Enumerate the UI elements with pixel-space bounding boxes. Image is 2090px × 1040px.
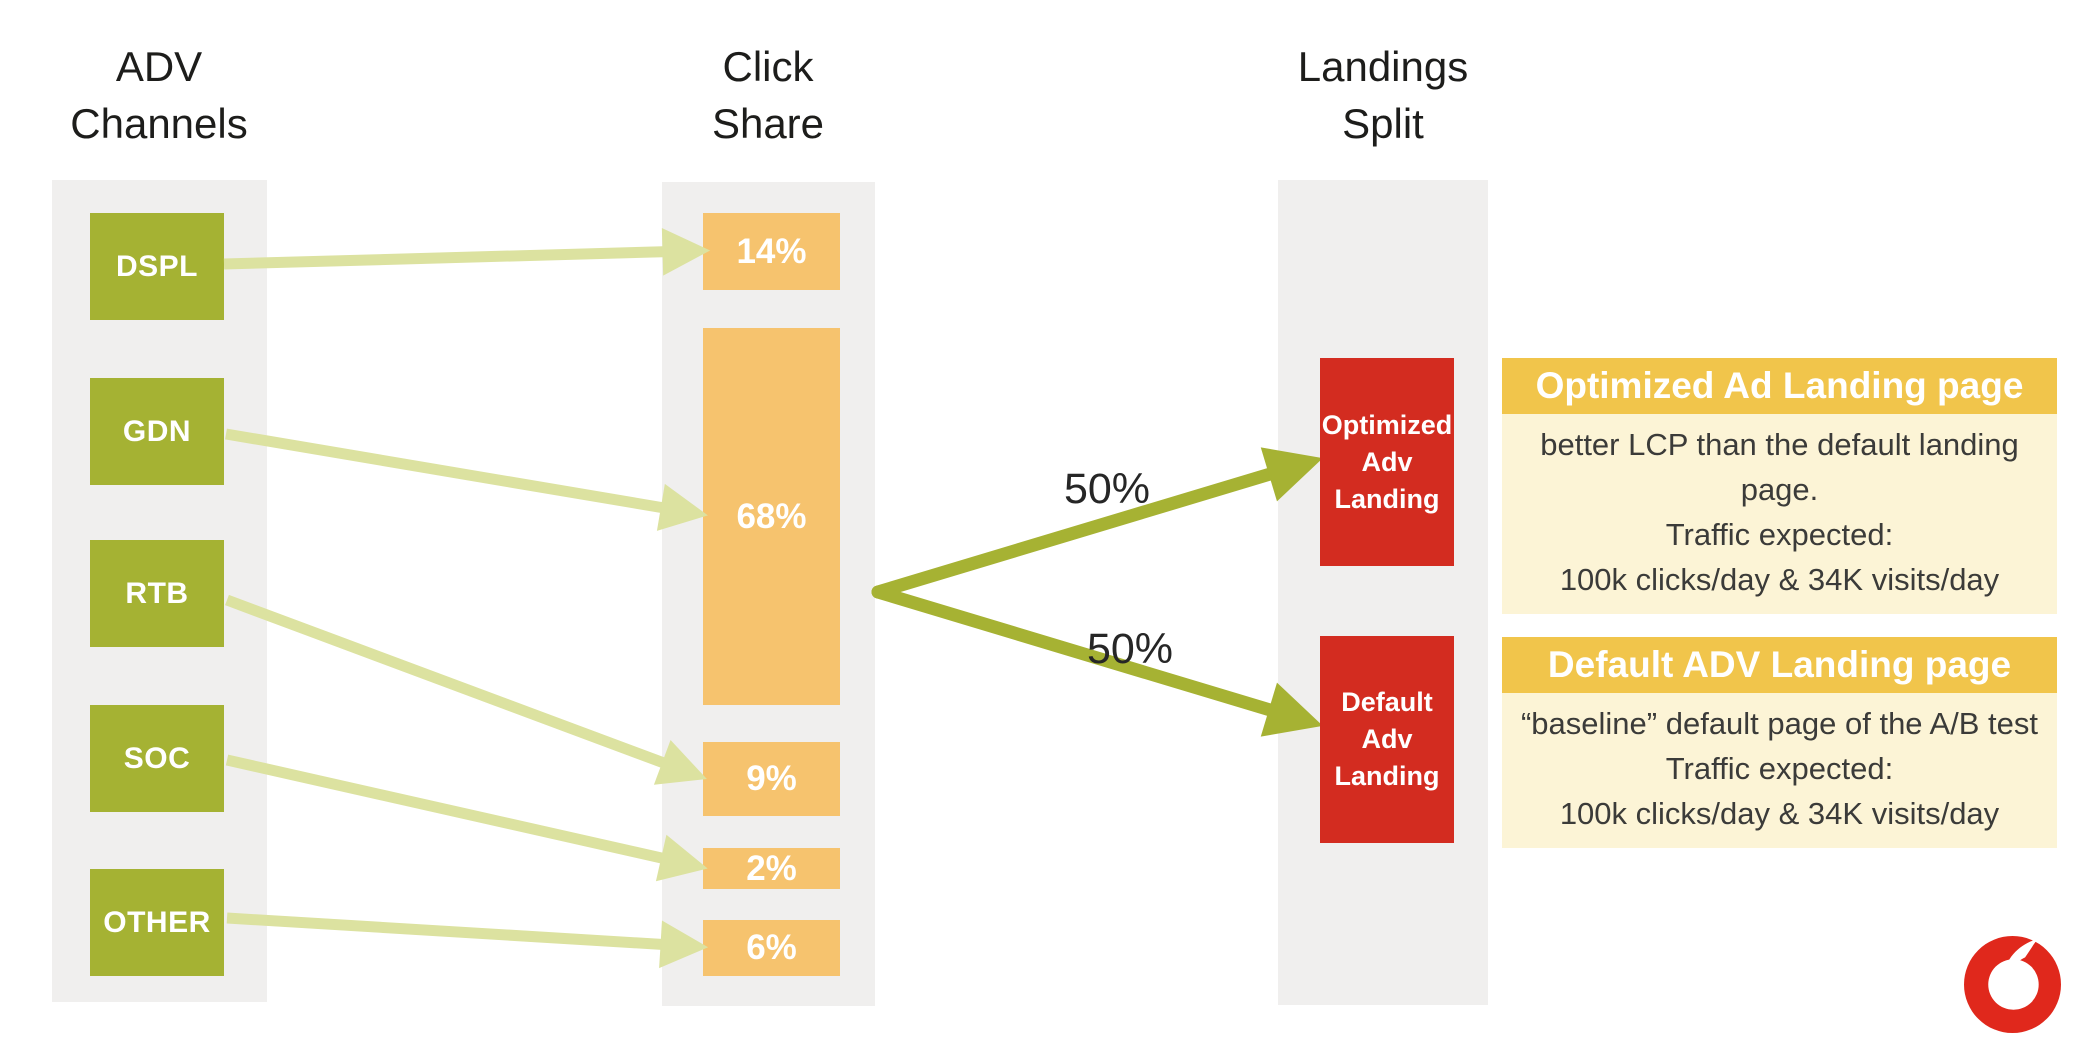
panel-optimized-body: better LCP than the default landing page… <box>1502 414 2057 614</box>
channel-box-other: OTHER <box>90 869 224 976</box>
panel-default-body: “baseline” default page of the A/B test … <box>1502 693 2057 848</box>
channel-box-rtb: RTB <box>90 540 224 647</box>
channel-box-dspl: DSPL <box>90 213 224 320</box>
arrow-soc-to-2 <box>227 760 688 864</box>
arrow-split-to-optimized <box>878 465 1300 592</box>
arrow-dspl-to-14 <box>224 251 690 264</box>
channel-box-soc: SOC <box>90 705 224 812</box>
channel-box-gdn: GDN <box>90 378 224 485</box>
vodafone-logo-icon <box>1964 936 2061 1033</box>
panel-optimized-landing: Optimized Ad Landing page better LCP tha… <box>1502 358 2057 614</box>
landing-box-optimized-line2: Adv <box>1361 444 1412 481</box>
landing-box-optimized-line1: Optimized <box>1322 407 1453 444</box>
share-box-9: 9% <box>703 742 840 816</box>
panel-default-body-line1: “baseline” default page of the A/B test <box>1512 701 2047 746</box>
panel-default-landing: Default ADV Landing page “baseline” defa… <box>1502 637 2057 848</box>
panel-default-title: Default ADV Landing page <box>1502 637 2057 693</box>
panel-optimized-body-line1: better LCP than the default landing page… <box>1512 422 2047 512</box>
split-label-upper: 50% <box>1064 465 1150 513</box>
landing-box-default: Default Adv Landing <box>1320 636 1454 843</box>
share-box-14: 14% <box>703 213 840 290</box>
column-header-landings-split: Landings Split <box>1283 38 1483 152</box>
arrow-gdn-to-68 <box>226 434 688 512</box>
panel-default-body-line2: Traffic expected: <box>1512 746 2047 791</box>
share-box-6: 6% <box>703 920 840 976</box>
panel-optimized-title: Optimized Ad Landing page <box>1502 358 2057 414</box>
landing-box-default-line1: Default <box>1341 684 1433 721</box>
arrow-split-to-default <box>878 592 1300 719</box>
landing-box-default-line2: Adv <box>1361 721 1412 758</box>
landing-box-optimized: Optimized Adv Landing <box>1320 358 1454 566</box>
panel-optimized-body-line3: 100k clicks/day & 34K visits/day <box>1512 557 2047 602</box>
column-header-adv-channels: ADV Channels <box>49 38 269 152</box>
panel-default-body-line3: 100k clicks/day & 34K visits/day <box>1512 791 2047 836</box>
arrow-other-to-6 <box>227 918 688 946</box>
landings-column-band <box>1278 180 1488 1005</box>
panel-optimized-body-line2: Traffic expected: <box>1512 512 2047 557</box>
arrow-rtb-to-9 <box>227 600 688 772</box>
landing-box-default-line3: Landing <box>1335 758 1440 795</box>
slide-canvas: ADV Channels Click Share Landings Split … <box>0 0 2090 1040</box>
share-box-68: 68% <box>703 328 840 705</box>
column-header-click-share: Click Share <box>688 38 848 152</box>
split-label-lower: 50% <box>1087 625 1173 673</box>
share-box-2: 2% <box>703 848 840 889</box>
landing-box-optimized-line3: Landing <box>1335 481 1440 518</box>
